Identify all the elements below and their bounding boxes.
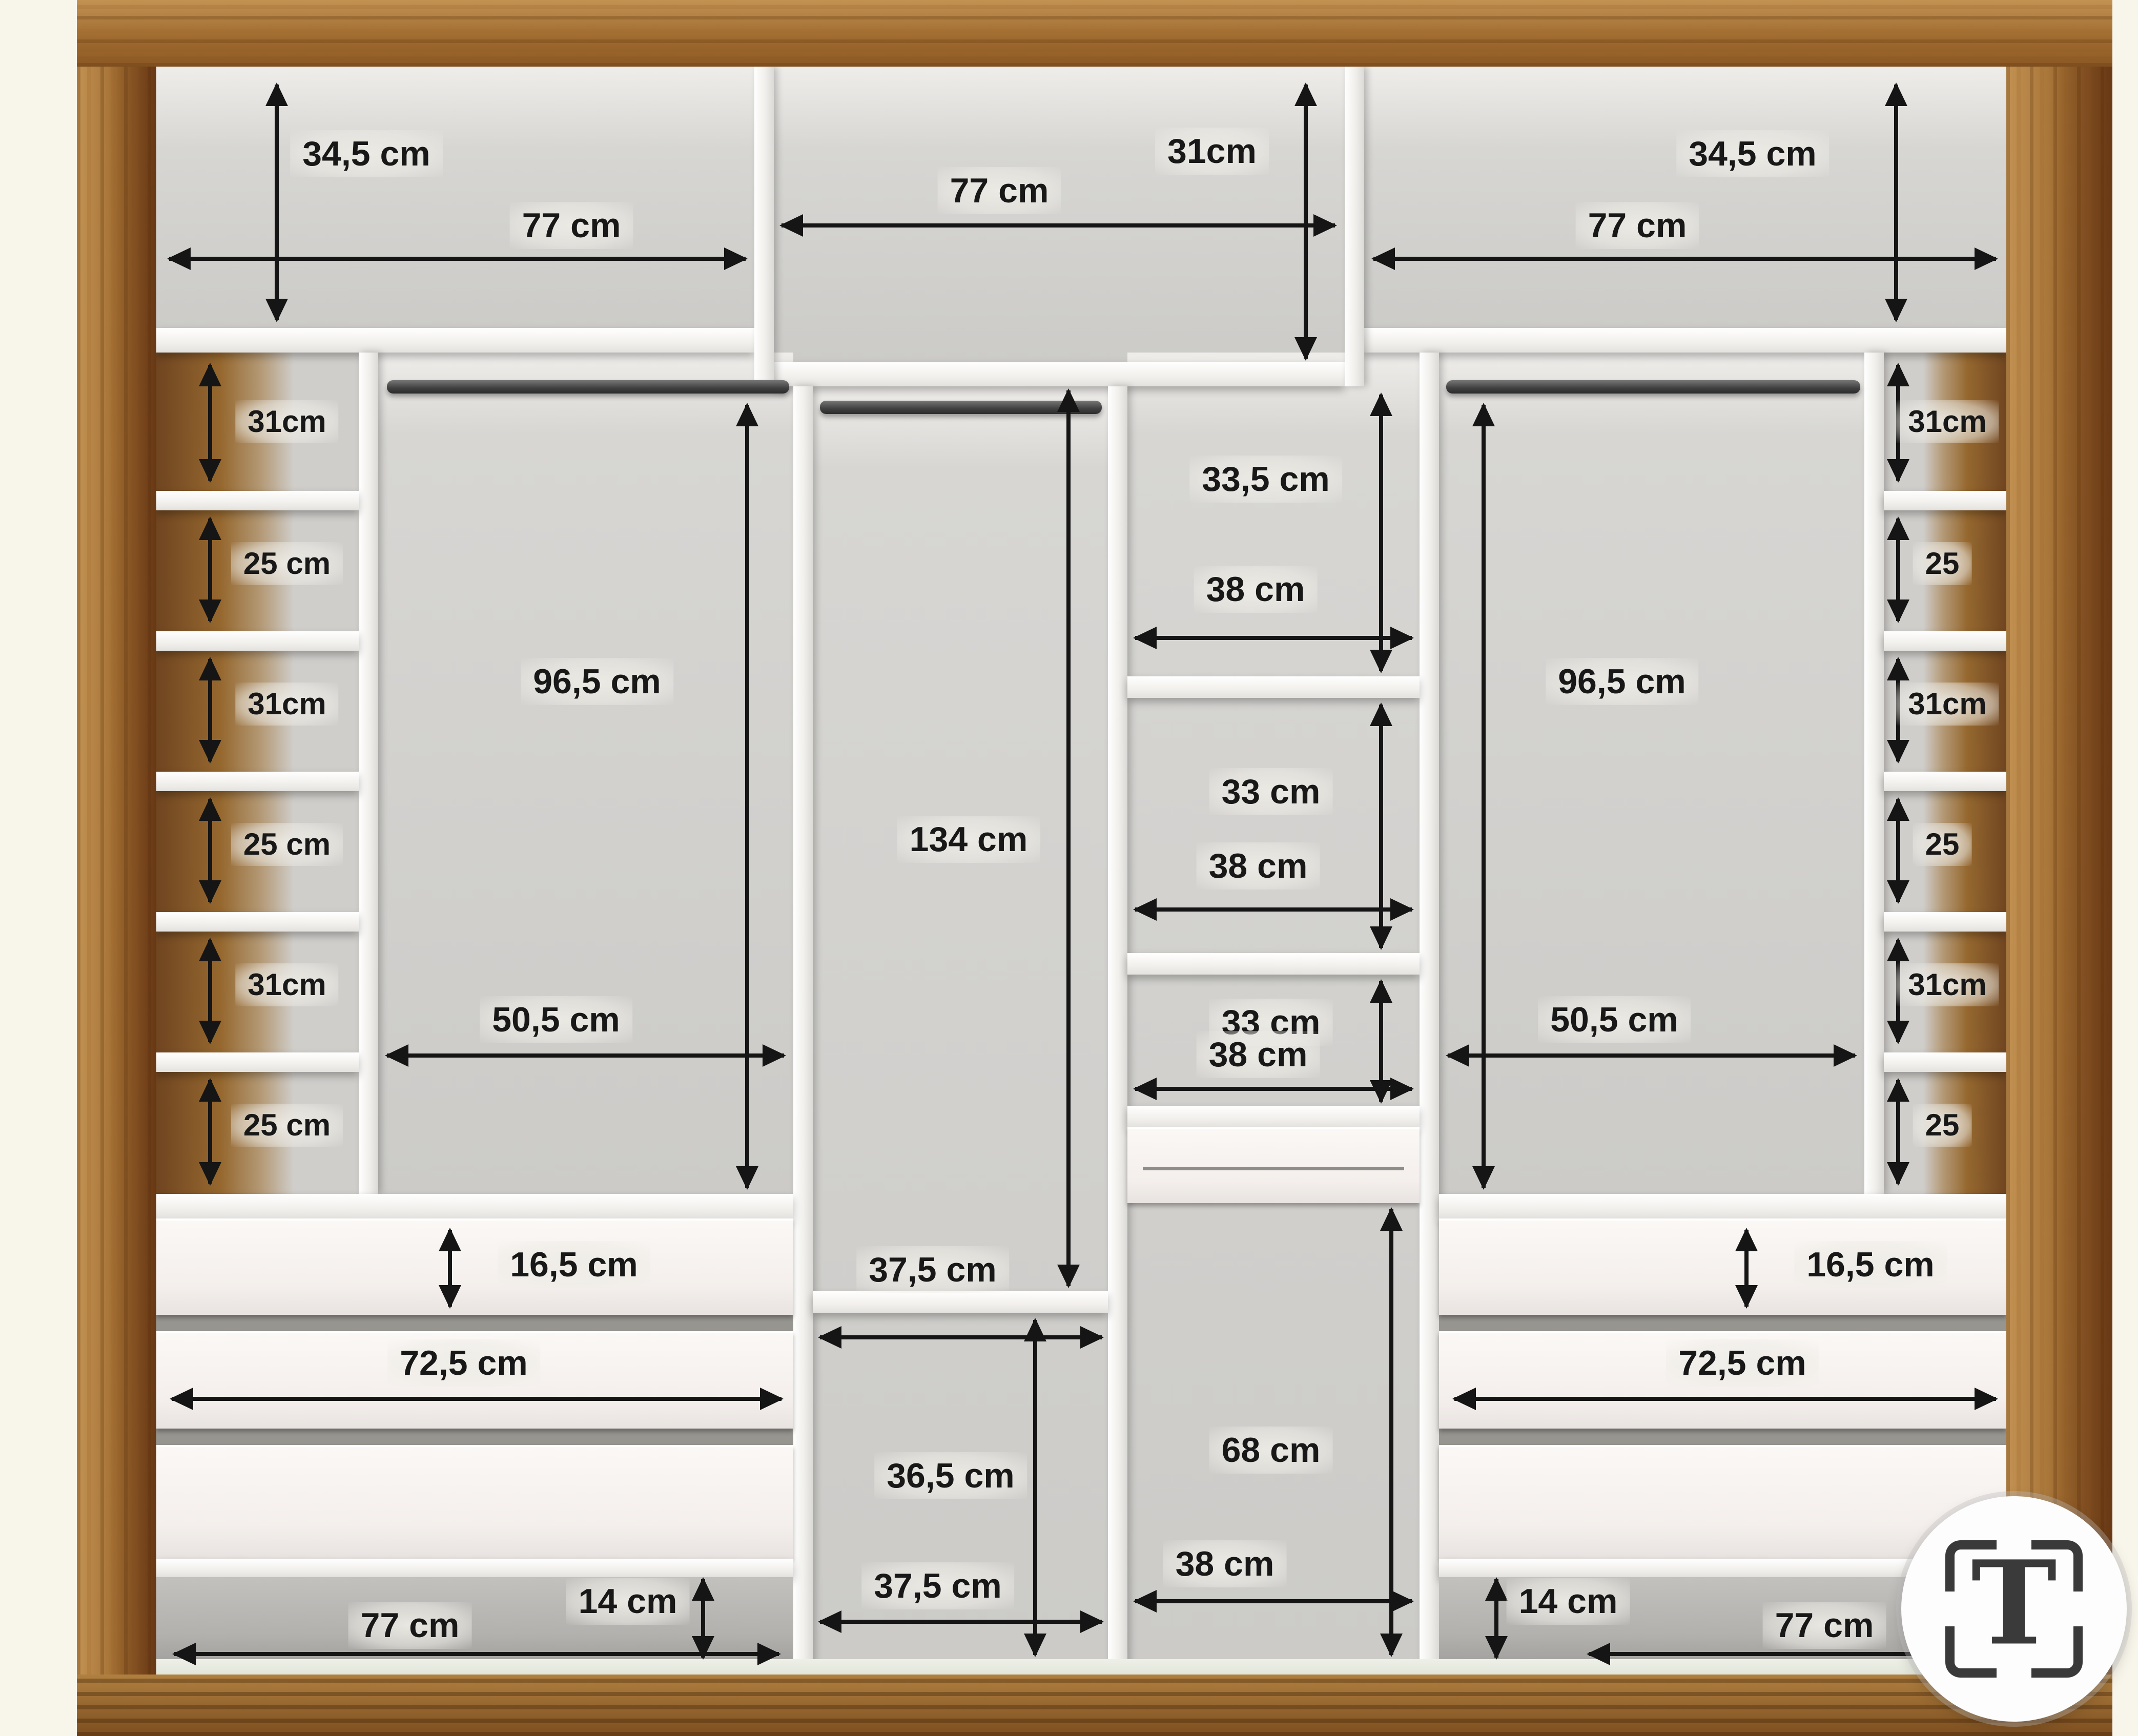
- dimension-arrow-center-bottom-height: [1033, 1320, 1037, 1655]
- dimension-label: 14 cm: [1507, 1578, 1630, 1625]
- dimension-arrow-center-bottom-width: [820, 1620, 1102, 1624]
- dimension-label: 134 cm: [897, 816, 1040, 863]
- shelf-board: [156, 491, 359, 510]
- wardrobe-dimension-diagram: 34,5 cm 77 cm 77 cm 31cm 34,5 cm 77 cm 3…: [0, 0, 2138, 1736]
- dimension-label: 38 cm: [1197, 1031, 1320, 1078]
- dimension-arrow-stack3-width: [1135, 1087, 1412, 1091]
- dimension-arrow-center-width: [820, 1335, 1102, 1339]
- divider-panel: [359, 353, 378, 1194]
- dimension-label: 77 cm: [938, 167, 1061, 214]
- dimension-label: 14 cm: [566, 1578, 690, 1625]
- dimension-label: 77 cm: [1763, 1602, 1886, 1649]
- hanging-rod: [1446, 380, 1860, 394]
- dimension-label: 31cm: [235, 683, 338, 726]
- dimension-arrow-top-right-height: [1894, 85, 1898, 320]
- top-center-compartment: [774, 67, 1345, 362]
- dimension-label: 16,5 cm: [1794, 1241, 1947, 1288]
- dimension-label: 31cm: [1896, 963, 1999, 1006]
- dimension-label: 31cm: [235, 963, 338, 1006]
- dimension-label: 37,5 cm: [861, 1562, 1014, 1609]
- dimension-label: 33,5 cm: [1189, 456, 1342, 503]
- shelf-board: [774, 362, 1345, 386]
- shelf-board: [1884, 491, 2006, 510]
- shelf-board: [156, 772, 359, 791]
- dimension-label: 50,5 cm: [1538, 996, 1691, 1043]
- shelf-board: [1364, 328, 2006, 353]
- shelf-board: [156, 1052, 359, 1072]
- shelf-board: [156, 328, 754, 353]
- dimension-label: 77 cm: [1576, 202, 1699, 249]
- dimension-label: 72,5 cm: [1666, 1339, 1819, 1387]
- shelf-board: [156, 912, 359, 932]
- right-hanging-bay: [1439, 353, 1864, 1194]
- dimension-arrow-stack-bottom-height: [1389, 1209, 1393, 1655]
- dimension-arrow-left-drawers-width: [172, 1397, 782, 1401]
- text-scan-badge[interactable]: T: [1901, 1496, 2127, 1722]
- dimension-label: 25 cm: [231, 823, 343, 866]
- dimension-arrow-shelf-height: [208, 799, 212, 902]
- drawer-front: [156, 1218, 793, 1315]
- dimension-arrow-shelf-height: [1896, 519, 1900, 621]
- wood-floor: [77, 1675, 2112, 1736]
- dimension-label: 68 cm: [1209, 1427, 1333, 1474]
- hanging-rod: [387, 380, 789, 394]
- dimension-arrow-left-hanging-width: [387, 1053, 784, 1058]
- drawer-unit-top: [1439, 1194, 2006, 1218]
- dimension-arrow-shelf-height: [208, 519, 212, 621]
- dimension-arrow-top-center-width: [782, 223, 1335, 228]
- dimension-label: 36,5 cm: [874, 1452, 1027, 1499]
- dimension-label: 31cm: [1896, 400, 1999, 443]
- dimension-arrow-shelf-height: [208, 659, 212, 761]
- dimension-arrow-right-hanging-height: [1482, 405, 1486, 1188]
- divider-panel: [1345, 67, 1364, 386]
- dimension-arrow-right-plinth-height: [1494, 1579, 1498, 1658]
- wood-frame-top: [77, 0, 2112, 67]
- dimension-label: 34,5 cm: [290, 130, 443, 177]
- dimension-label: 25 cm: [231, 542, 343, 585]
- shelf-board: [1884, 772, 2006, 791]
- dimension-label: 16,5 cm: [498, 1241, 650, 1288]
- dimension-arrow-stack3-height: [1379, 981, 1383, 1102]
- shelf-board: [1127, 953, 1420, 975]
- dimension-label: 38 cm: [1197, 842, 1320, 890]
- shelf-board: [813, 1291, 1108, 1313]
- base-board: [156, 1559, 793, 1577]
- dimension-label: 96,5 cm: [521, 658, 673, 705]
- dimension-label: 50,5 cm: [480, 996, 632, 1043]
- dimension-arrow-right-hanging-width: [1448, 1053, 1855, 1058]
- dimension-arrow-top-left-width: [169, 257, 746, 261]
- dimension-arrow-right-drawers-width: [1454, 1397, 1996, 1401]
- left-hanging-bay: [378, 353, 793, 1194]
- dimension-arrow-stack1-width: [1135, 636, 1412, 640]
- dimension-label: 77 cm: [348, 1602, 472, 1649]
- dimension-label: 37,5 cm: [856, 1246, 1009, 1293]
- bottom-strip: [156, 1659, 2006, 1675]
- dimension-arrow-left-drawer-height: [448, 1230, 452, 1307]
- dimension-label: 38 cm: [1163, 1540, 1287, 1587]
- dimension-label: 25 cm: [231, 1104, 343, 1147]
- shelf-board: [1884, 1052, 2006, 1072]
- dimension-label: 25: [1913, 542, 1972, 585]
- dimension-label: 38 cm: [1194, 566, 1318, 613]
- left-drawer-unit: [156, 1218, 793, 1559]
- dimension-label: 33 cm: [1209, 768, 1333, 815]
- text-scan-icon: T: [1901, 1496, 2127, 1722]
- dimension-arrow-shelf-height: [1896, 799, 1900, 902]
- dimension-label: 96,5 cm: [1546, 658, 1698, 705]
- dimension-arrow-shelf-height: [208, 365, 212, 481]
- dimension-arrow-shelf-height: [208, 1080, 212, 1184]
- divider-panel: [1864, 353, 1884, 1194]
- dimension-label: 34,5 cm: [1676, 130, 1829, 177]
- dimension-label: 77 cm: [510, 202, 633, 249]
- dimension-arrow-stack1-height: [1379, 395, 1383, 671]
- dimension-label: 72,5 cm: [387, 1339, 540, 1387]
- small-drawer-handle: [1143, 1167, 1404, 1170]
- wood-shadow: [77, 0, 156, 1736]
- divider-panel: [754, 67, 774, 386]
- divider-panel: [1420, 353, 1439, 1675]
- dimension-arrow-top-right-width: [1373, 257, 1996, 261]
- shelf-board: [1884, 912, 2006, 932]
- divider-panel: [1108, 386, 1127, 1675]
- text-scan-letter: T: [1971, 1536, 2057, 1671]
- drawer-front: [156, 1445, 793, 1559]
- wood-shadow: [2006, 0, 2112, 1736]
- dimension-arrow-right-drawer-height: [1744, 1230, 1749, 1307]
- dimension-arrow-stack-bottom-width: [1135, 1599, 1412, 1603]
- dimension-label: 31cm: [235, 400, 338, 443]
- dimension-label: 31cm: [1155, 128, 1269, 175]
- shelf-board: [1884, 631, 2006, 651]
- top-left-compartment: [156, 67, 754, 328]
- dimension-arrow-top-left-height: [275, 85, 279, 320]
- wood-frame-right: [2006, 0, 2112, 1736]
- dimension-arrow-center-height: [1066, 390, 1071, 1286]
- divider-panel: [793, 386, 813, 1675]
- dimension-arrow-stack2-width: [1135, 907, 1412, 912]
- dimension-arrow-top-center-height: [1304, 85, 1308, 359]
- dimension-arrow-left-plinth-height: [701, 1579, 705, 1658]
- dimension-label: 25: [1913, 823, 1972, 866]
- wood-frame-left: [77, 0, 156, 1736]
- dimension-arrow-left-plinth-width: [174, 1652, 779, 1656]
- drawer-unit-top: [156, 1194, 793, 1218]
- small-drawer-front: [1127, 1127, 1420, 1203]
- dimension-arrow-shelf-height: [208, 940, 212, 1042]
- dimension-label: 25: [1913, 1104, 1972, 1147]
- top-right-compartment: [1364, 67, 2006, 328]
- dimension-label: 31cm: [1896, 683, 1999, 726]
- shelf-board: [1127, 1106, 1420, 1127]
- shelf-board: [156, 631, 359, 651]
- shelf-board: [1127, 676, 1420, 698]
- dimension-arrow-shelf-height: [1896, 1080, 1900, 1184]
- dimension-arrow-left-hanging-height: [745, 405, 749, 1188]
